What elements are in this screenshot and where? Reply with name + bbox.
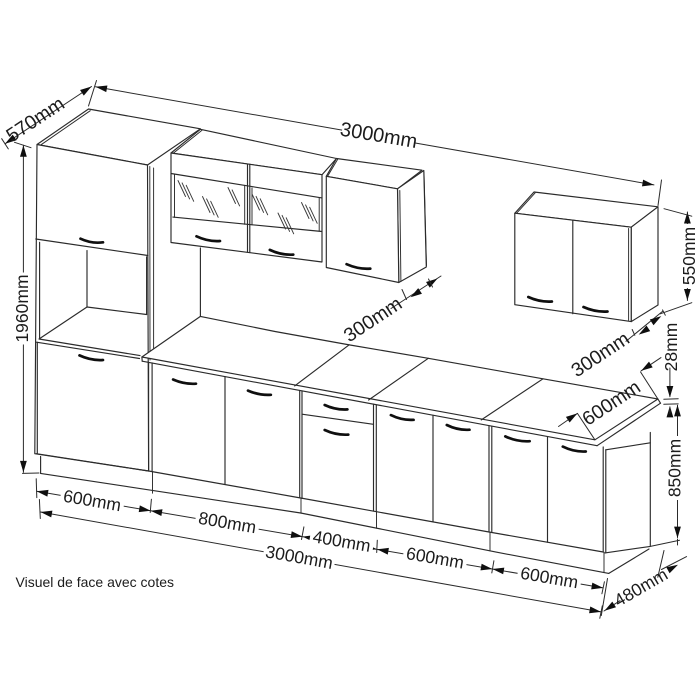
svg-text:1960mm: 1960mm (12, 274, 32, 342)
svg-text:Visuel de face avec cotes: Visuel de face avec cotes (16, 574, 175, 590)
svg-text:550mm: 550mm (679, 227, 699, 285)
svg-text:850mm: 850mm (665, 439, 685, 497)
svg-text:28mm: 28mm (661, 323, 681, 372)
